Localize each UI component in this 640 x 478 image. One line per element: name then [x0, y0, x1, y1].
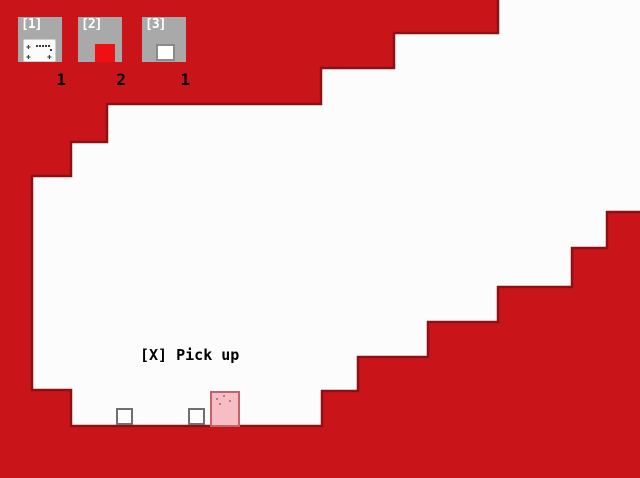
plate-dot [48, 45, 50, 47]
ground-item-white-box-2[interactable] [188, 408, 205, 425]
plate-dot [36, 45, 38, 47]
player-face-dot [229, 400, 231, 402]
plate-dot [42, 45, 44, 47]
game-viewport: [1] ✚ ✚ ✚ 1 [2] 2 [3] 1 [X] Pick up [0, 0, 640, 478]
plate-stud-icon: ✚ [26, 43, 31, 51]
slot-1-count: 1 [18, 70, 66, 89]
inventory-slot-2[interactable]: [2] [78, 17, 122, 62]
slot-3-count: 1 [142, 70, 190, 89]
ground-item-white-box-1[interactable] [116, 408, 133, 425]
pickup-prompt: [X] Pick up [140, 347, 239, 364]
player-character[interactable] [210, 391, 240, 427]
plate-dot [50, 49, 52, 51]
white-box-icon [156, 44, 175, 61]
plate-stud-icon: ✚ [47, 53, 52, 61]
red-block-icon [95, 44, 115, 62]
slot-1-hotkey-label: [1] [21, 18, 41, 32]
plate-stud-icon: ✚ [26, 53, 31, 61]
inventory-slot-1[interactable]: [1] ✚ ✚ ✚ [18, 17, 62, 62]
slot-3-hotkey-label: [3] [145, 18, 165, 32]
slot-2-hotkey-label: [2] [81, 18, 101, 32]
slot-2-count: 2 [78, 70, 126, 89]
player-face-dot [216, 398, 218, 400]
dotted-plate-icon: ✚ ✚ ✚ [23, 39, 56, 62]
plate-dot [39, 45, 41, 47]
inventory-slot-3[interactable]: [3] [142, 17, 186, 62]
plate-dot [45, 45, 47, 47]
player-face-dot [223, 395, 225, 397]
player-face-dot [219, 403, 221, 405]
